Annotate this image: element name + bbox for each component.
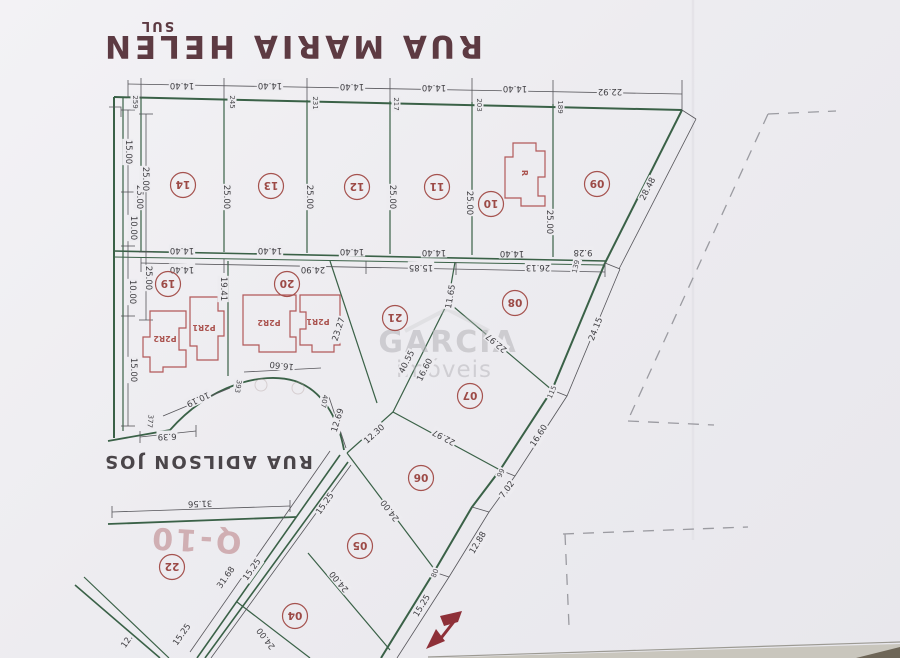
house-label: R: [520, 170, 529, 176]
lot-number: 05: [353, 539, 368, 551]
house-label: P2R2: [153, 334, 176, 343]
dim-label: 22.97: [431, 427, 457, 447]
lot-12: 12: [345, 175, 370, 200]
lot-06: 06: [409, 466, 434, 491]
lot-22: 22: [160, 555, 185, 580]
dim-label: 10.00: [128, 216, 138, 240]
station-label: 245: [228, 95, 236, 108]
lot-number: 20: [280, 277, 295, 289]
dim-label: 22.92: [598, 86, 622, 96]
station-label: 377: [145, 414, 154, 428]
house-label: P2R1: [192, 323, 216, 332]
station-label: 203: [475, 98, 483, 111]
dim-label: 19.41: [218, 277, 228, 301]
lot-number: 06: [414, 471, 429, 483]
lot-number: 22: [165, 560, 180, 572]
dim-label: 24.15: [587, 316, 605, 342]
dim-label: 14.40: [422, 82, 446, 92]
dim-label: 25.00: [143, 266, 153, 290]
dim-label: 11.65: [444, 284, 458, 310]
lot05-04-line: [308, 553, 390, 650]
dim-label: 14.40: [258, 245, 282, 255]
street-name-left: RUA ADILSON JOS: [103, 451, 313, 472]
dim-label: 15.00: [123, 140, 133, 164]
street-name-top: RUA MARIA HELEN: [101, 28, 483, 64]
house-label: P2R2: [257, 318, 280, 327]
lot-number: 11: [430, 180, 445, 192]
lot-number: 14: [176, 178, 191, 190]
lot-number: 07: [463, 389, 478, 401]
lot-19: 19: [156, 272, 181, 297]
dim-label: 25.00: [221, 185, 231, 209]
station-label: 217: [392, 97, 400, 110]
dim-label: 23.27: [331, 316, 348, 342]
dim-label: 14.40: [258, 80, 282, 90]
lot-07: 07: [458, 384, 483, 409]
dim-label: 15.00: [128, 358, 138, 382]
lot-number: 04: [288, 609, 303, 621]
dim-label: 16.60: [529, 423, 551, 449]
dim-label: 26.13: [526, 262, 550, 272]
station-label: 189: [556, 100, 564, 113]
dim-label: 14.40: [500, 248, 524, 258]
lot-04: 04: [283, 604, 308, 629]
dim-label: 25.00: [387, 185, 397, 209]
block-label: Q-10: [149, 520, 243, 560]
dim-label: 14.40: [170, 80, 194, 90]
paper-edge-shadow: [430, 644, 900, 658]
lot-05: 05: [348, 534, 373, 559]
boundary-northeast: [381, 263, 605, 658]
road-curve: [108, 378, 344, 450]
lot-10: 10: [479, 192, 504, 217]
dim-label: 14.40: [170, 245, 194, 255]
dim-label: 9.28: [574, 247, 593, 257]
dim-label: 15.85: [409, 262, 433, 272]
dim-label: 6.39: [157, 431, 176, 442]
north-arrow-icon: [426, 611, 462, 649]
dim-label: 15.25: [412, 593, 433, 619]
dim-label: 12.88: [468, 530, 489, 556]
dim-label: 14.40: [422, 247, 446, 257]
diagonal-street-b: [205, 462, 348, 658]
dim-label: 25.00: [140, 167, 150, 191]
lot-14: 14: [171, 173, 196, 198]
lot-number: 12: [350, 180, 365, 192]
station-label: 259: [131, 95, 139, 108]
house-label: P2R1: [306, 317, 330, 326]
lot-number: 09: [590, 177, 605, 189]
dim-label: 25.00: [544, 210, 554, 234]
dim-label: 12.30: [362, 423, 387, 447]
lot-number: 21: [388, 311, 403, 323]
dim-label: 31.56: [188, 498, 213, 509]
lot-20: 20: [275, 272, 300, 297]
dim-label: 14.40: [503, 83, 527, 93]
lot-08: 08: [503, 291, 528, 316]
lot-number: 13: [264, 179, 279, 191]
station-label: 231: [311, 96, 319, 109]
lot-13: 13: [259, 174, 284, 199]
dim-label: 12.69: [330, 407, 347, 433]
dim-label: 12.: [119, 633, 135, 650]
lot-09: 09: [585, 172, 610, 197]
dim-label: 25.00: [464, 191, 474, 215]
lot-number: 08: [508, 296, 523, 308]
lot-11: 11: [425, 175, 450, 200]
plat-map: GARCIA imóveis SUL RUA MARIA HELEN RUA A…: [0, 0, 900, 658]
plat-survey-photo: GARCIA imóveis SUL RUA MARIA HELEN RUA A…: [0, 0, 900, 658]
dim-label: 24.90: [301, 264, 325, 274]
dim-label: 10.00: [127, 280, 137, 304]
dimension-labels: 14.40 14.40 14.40 14.40 14.40 22.92 28.4…: [118, 80, 659, 653]
dim-label: 14.40: [340, 81, 364, 91]
lot-number: 10: [484, 197, 499, 209]
dim-label: 25.00: [304, 185, 314, 209]
lot-number: 19: [161, 277, 176, 289]
dim-label: 14.40: [340, 246, 364, 256]
